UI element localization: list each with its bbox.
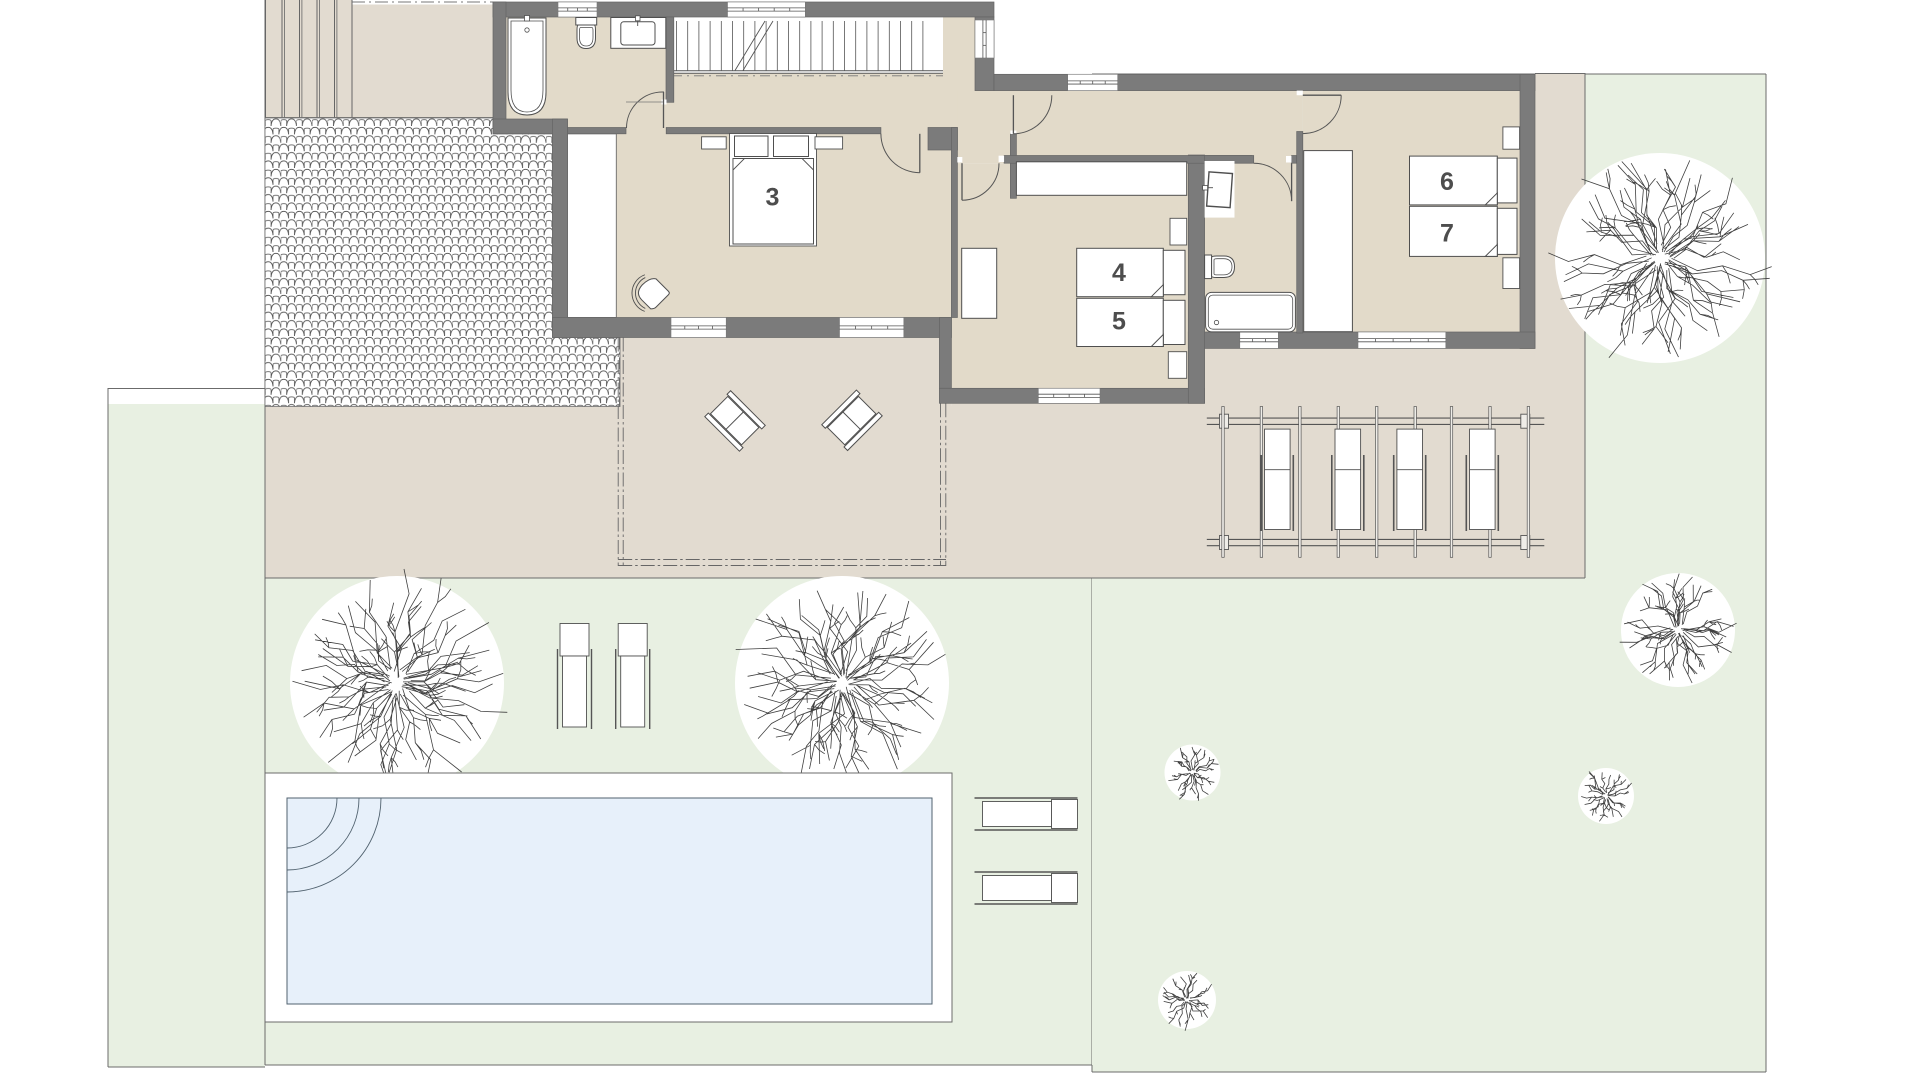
svg-text:6: 6 — [1440, 168, 1454, 196]
svg-text:3: 3 — [766, 184, 780, 212]
svg-text:4: 4 — [1112, 259, 1126, 287]
svg-text:7: 7 — [1440, 220, 1454, 248]
svg-text:5: 5 — [1112, 308, 1126, 336]
